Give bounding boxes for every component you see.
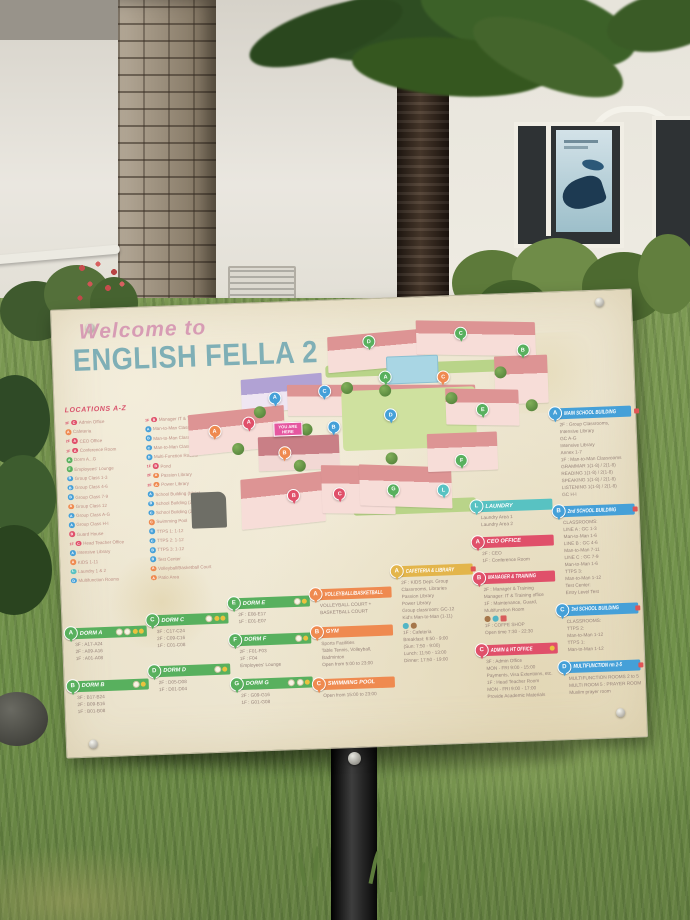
photo-scene: Welcome to ENGLISH FELLA 2 LOCATIONS A-Z… xyxy=(0,0,690,920)
light-amenity-icon xyxy=(205,615,212,622)
screw xyxy=(595,298,604,307)
info-box-laundry: LLAUNDRYLaundry Area 1Laundry Area 2 xyxy=(472,499,553,530)
box-pin-b: B xyxy=(551,505,566,520)
info-box-ceo-office: ACEO OFFICE2F : CEO1F : Conference Room xyxy=(474,534,555,565)
header-icons xyxy=(292,598,307,606)
box-title: 3rd SCHOOL BUILDING xyxy=(571,606,619,614)
marker-tail xyxy=(323,396,327,402)
pin-tail xyxy=(553,418,557,424)
map-marker-c: C xyxy=(436,371,449,384)
gold-amenity-icon xyxy=(222,666,227,671)
location-letter-badge: A xyxy=(151,575,157,581)
box-pin-c: C xyxy=(555,603,570,618)
map-marker-g: G xyxy=(387,483,400,496)
light-amenity-icon xyxy=(124,628,131,635)
location-label: Pond xyxy=(160,463,171,468)
wifi-icon xyxy=(492,616,498,622)
map-marker-b: B xyxy=(327,420,340,433)
location-letter-badge: A xyxy=(153,473,159,479)
info-box-dorm-d: DDORM D2F : D05-D081F : D01-D04 xyxy=(150,663,231,694)
pin-tail xyxy=(71,691,75,697)
marker-tail xyxy=(367,346,371,352)
floor-tag: 2F xyxy=(147,483,151,487)
location-label: Laundry 1 & 2 xyxy=(78,568,106,574)
location-letter-badge: B xyxy=(151,417,157,423)
box-title: VOLLEYBALL/BASKETBALL xyxy=(324,589,383,597)
light-amenity-icon xyxy=(132,681,139,688)
info-box-volleyball-basketball: AVOLLEYBALL/BASKETBALLVOLLEYBALL COURT +… xyxy=(311,586,392,617)
pin-tail xyxy=(232,608,236,614)
box-line: Open time 7:30 - 22:30 xyxy=(485,628,556,638)
map-marker-l: L xyxy=(437,483,450,496)
location-letter-badge: B xyxy=(153,463,159,469)
header-icons xyxy=(204,615,226,623)
box-pin-l: L xyxy=(469,499,484,514)
marker-tail xyxy=(292,500,296,506)
box-title: MULTIFUNCTION rm 2-5 xyxy=(573,662,622,670)
location-letter-badge: B xyxy=(146,436,152,442)
box-pin-b: B xyxy=(66,679,81,694)
window-mullion xyxy=(546,126,551,236)
map-marker-c: C xyxy=(333,487,346,500)
location-label: Group Class H-I xyxy=(76,521,108,527)
marker-tail xyxy=(459,338,463,344)
light-amenity-icon xyxy=(214,666,221,673)
location-letter-badge: A xyxy=(145,426,151,432)
info-box-dorm-e: EDORM E2F : E08-E171F : E01-E07 xyxy=(230,595,311,626)
info-box-dorm-g: GDORM G2F : G09-G161F : G01-G08 xyxy=(233,676,314,707)
location-letter-badge: A xyxy=(148,491,154,497)
wall-upper-left xyxy=(0,0,122,40)
box-line: BASKETBALL COURT xyxy=(320,607,391,617)
pin-tail xyxy=(235,689,239,695)
info-box-2nd-school-building: B2nd SCHOOL BUILDINGCLASSROOMS:LINE A : … xyxy=(555,504,638,597)
wifi-icon xyxy=(403,623,409,629)
box-title: MAIN SCHOOL BUILDING xyxy=(564,409,616,417)
box-title: GYM xyxy=(326,629,339,635)
info-box-body: MULTIFUNCTION ROOMS 2 to 5MULTI ROOM 5 :… xyxy=(561,670,642,697)
info-box-body: 3F : A17-A242F : A09-A161F : A01-A08 xyxy=(67,636,148,663)
light-amenity-icon xyxy=(115,628,122,635)
pole-bolt xyxy=(348,752,361,765)
screw xyxy=(89,739,98,748)
info-box-3rd-school-building: C3rd SCHOOL BUILDINGCLASSROOMS:TTPS 2:Ma… xyxy=(558,602,640,654)
header-icons xyxy=(634,605,641,610)
map-marker-b: B xyxy=(516,344,529,357)
info-box-main-school-building: AMAIN SCHOOL BUILDING2F : Group Classroo… xyxy=(551,406,634,499)
header-icons xyxy=(632,408,639,413)
box-line: 1F : B01-B08 xyxy=(78,706,149,716)
map-marker-d: D xyxy=(384,409,397,422)
info-box-swimming-pool: CSWIMMING POOLOpen from 15:00 to 23:00 xyxy=(315,676,396,700)
box-line: 1F : D01-D04 xyxy=(159,684,230,694)
boxes-column-school-buildings: AMAIN SCHOOL BUILDING2F : Group Classroo… xyxy=(551,406,642,697)
gold-amenity-icon xyxy=(303,635,308,640)
box-pin-e: E xyxy=(227,596,242,611)
you-are-here-badge: YOU ARE HERE xyxy=(273,422,302,437)
marker-tail xyxy=(521,355,525,361)
box-title: CAFETERIA & LIBRARY xyxy=(406,567,455,575)
box-line: Provide Academic Materials xyxy=(487,691,558,701)
gold-amenity-icon xyxy=(550,646,555,651)
boxes-column-dorm-ab: ADORM A3F : A17-A242F : A09-A161F : A01-… xyxy=(67,625,150,716)
marker-tail xyxy=(283,457,287,463)
location-label: Head Teacher Office xyxy=(83,539,124,545)
boxes-column-offices: LLAUNDRYLaundry Area 1Laundry Area 2ACEO… xyxy=(472,499,559,702)
gold-amenity-icon xyxy=(302,599,307,604)
info-box-cafeteria-library: ACAFETERIA & LIBRARY2F : KIDS Dept. Grou… xyxy=(393,563,477,665)
location-label: Group Class 7-9 xyxy=(75,493,108,499)
marker-tail xyxy=(213,436,217,442)
pin-tail xyxy=(315,637,319,643)
boxes-column-dorm-efg: EDORM E2F : E08-E171F : E01-E07FDORM F2F… xyxy=(230,595,314,707)
location-label: Admin Office xyxy=(79,419,105,425)
info-box-gym: BGYMSports FacilitiesTable Tennis, Volle… xyxy=(313,624,394,669)
gold-amenity-icon xyxy=(141,681,146,686)
location-label: Employees' Lounge xyxy=(74,465,114,471)
header-icons xyxy=(632,507,639,512)
info-box-body: 3F : Admin OfficeMON - FRI 9:00 - 15:00P… xyxy=(478,653,560,701)
info-box-dorm-b: BDORM B3F : B17-B242F : B09-B161F : B01-… xyxy=(69,678,150,716)
info-box-body: 2F : G09-G161F : G01-G08 xyxy=(233,687,314,707)
info-box-body: 2F : Manager & TrainingManager: IT & Tra… xyxy=(475,581,557,637)
location-letter-badge: C xyxy=(149,519,155,525)
info-box-dorm-c: CDORM C3F : C17-C242F : C09-C161F : C01-… xyxy=(148,612,229,650)
gold-amenity-icon xyxy=(139,629,144,634)
info-box-body: 2F : CEO1F : Conference Room xyxy=(474,545,555,565)
info-box-body: 3F : B17-B242F : B09-B161F : B01-B08 xyxy=(69,689,150,716)
box-pin-d: D xyxy=(557,660,572,675)
location-letter-badge: B xyxy=(150,556,156,562)
marker-tail xyxy=(332,431,336,437)
foreground-plants xyxy=(0,345,80,635)
box-line: Man-to-Man 1-12 xyxy=(568,644,639,654)
location-letter-badge: C xyxy=(149,529,155,535)
box-pin-a: A xyxy=(548,406,563,421)
boxes-column-cafeteria: ACAFETERIA & LIBRARY2F : KIDS Dept. Grou… xyxy=(393,563,477,665)
map-marker-e: E xyxy=(476,403,489,416)
light-amenity-icon xyxy=(288,679,295,686)
info-box-body: CLASSROOMS:TTPS 2:Man-to-Man 1-12TTPS 1:… xyxy=(559,613,640,654)
map-marker-c: C xyxy=(318,385,331,398)
box-title: DORM D xyxy=(163,667,186,674)
box-title: DORM E xyxy=(243,600,266,607)
bush xyxy=(0,375,50,465)
light-amenity-icon xyxy=(293,598,300,605)
info-box-body: 2F : D05-D081F : D01-D04 xyxy=(151,674,232,694)
map-marker-a: A xyxy=(268,391,281,404)
marker-tail xyxy=(384,381,388,387)
boxes-column-dorm-cd: CDORM C3F : C17-C242F : C09-C161F : C01-… xyxy=(148,612,231,694)
box-pin-b: B xyxy=(310,625,325,640)
pin-tail xyxy=(557,517,561,523)
box-pin-a: A xyxy=(308,587,323,602)
poster-text-line xyxy=(564,146,588,149)
info-box-body: Sports FacilitiesTable Tennis, Volleybal… xyxy=(313,635,394,669)
box-line: 1F : E01-E07 xyxy=(238,616,309,626)
floor-tag: 2F xyxy=(147,474,151,478)
coffee-icon xyxy=(411,623,417,629)
box-line: Open from 5:00 to 23:00 xyxy=(322,659,393,669)
info-box-manager-training: BMANAGER & TRAINING2F : Manager & Traini… xyxy=(475,570,557,637)
box-pin-d: D xyxy=(147,664,162,679)
bush xyxy=(0,525,52,615)
bush xyxy=(638,234,690,314)
marker-tail xyxy=(442,495,446,501)
red-amenity-icon xyxy=(639,662,644,667)
box-line: 1F : Conference Room xyxy=(482,555,553,565)
gold-amenity-icon xyxy=(305,679,310,684)
marker-tail xyxy=(481,414,485,420)
pin-tail xyxy=(317,689,321,695)
location-letter-badge: C xyxy=(148,510,154,516)
location-label: Guard House xyxy=(77,531,104,537)
box-pin-c: C xyxy=(312,677,327,692)
box-pin-a: A xyxy=(390,564,405,579)
box-title: ADMIN & HT OFFICE xyxy=(491,646,533,654)
light-amenity-icon xyxy=(296,679,303,686)
box-title: SWIMMING POOL xyxy=(328,679,375,687)
location-label: Conference Room xyxy=(80,447,117,453)
location-letter-badge: C xyxy=(146,445,152,451)
location-letter-badge: B xyxy=(150,547,156,553)
box-line: Employees' Lounge xyxy=(240,660,311,670)
location-label: KIDS 1-11 xyxy=(78,559,99,565)
box-line: Entry Level Test xyxy=(566,588,637,598)
location-label: CEO Office xyxy=(79,438,102,444)
location-label: Group Class A-G xyxy=(76,512,110,518)
pin-tail xyxy=(480,655,484,661)
marker-tail xyxy=(460,465,464,471)
marker-tail xyxy=(441,382,445,388)
info-box-admin-ht-office: CADMIN & HT OFFICE3F : Admin OfficeMON -… xyxy=(478,642,560,701)
location-letter-badge: C xyxy=(149,538,155,544)
marker-tail xyxy=(247,427,251,433)
box-pin-a: A xyxy=(471,535,486,550)
box-pin-f: F xyxy=(228,633,243,648)
box-title: CEO OFFICE xyxy=(487,538,521,545)
location-label: Group Class 12 xyxy=(76,503,107,509)
info-box-body: 2F : Group Classrooms,Intensive LibraryG… xyxy=(551,417,634,499)
location-label: Multifunction Rooms xyxy=(78,577,119,583)
gold-amenity-icon xyxy=(214,616,219,621)
box-title: DORM A xyxy=(80,630,103,637)
card-icon xyxy=(500,615,506,621)
floor-tag: 1F xyxy=(147,464,151,468)
header-icons xyxy=(131,680,146,688)
location-letter-badge: A xyxy=(150,566,156,572)
map-marker-b: B xyxy=(287,489,300,502)
map-marker-c: C xyxy=(454,327,467,340)
map-marker-d: D xyxy=(362,335,375,348)
location-label: Patio Area xyxy=(158,574,179,580)
marker-tail xyxy=(392,494,396,500)
box-title: 2nd SCHOOL BUILDING xyxy=(568,507,617,515)
box-line: Open from 15:00 to 23:00 xyxy=(323,690,394,700)
pin-tail xyxy=(151,625,155,631)
box-line: 1F : C01-C08 xyxy=(157,640,228,650)
marker-tail xyxy=(273,402,277,408)
poster-text-line xyxy=(564,140,598,143)
red-amenity-icon xyxy=(633,507,638,512)
map-marker-a: A xyxy=(208,425,221,438)
marker-tail xyxy=(389,420,393,426)
box-title: MANAGER & TRAINING xyxy=(488,573,536,581)
boxes-column-sports: AVOLLEYBALL/BASKETBALLVOLLEYBALL COURT +… xyxy=(311,586,395,700)
pin-tail xyxy=(152,676,156,682)
info-box-body: VOLLEYBALL COURT +BASKETBALL COURT xyxy=(312,597,393,617)
box-pin-c: C xyxy=(474,643,489,658)
box-title: DORM G xyxy=(246,680,269,687)
header-icons xyxy=(637,662,644,667)
pin-tail xyxy=(69,638,73,644)
map-marker-a: A xyxy=(379,370,392,383)
red-flowers xyxy=(72,258,132,308)
map-marker-b: B xyxy=(278,446,291,459)
box-title: DORM F xyxy=(244,637,266,644)
header-icons xyxy=(548,646,555,651)
header-icons xyxy=(114,628,144,636)
box-title: DORM C xyxy=(161,617,184,624)
info-box-body: 3F : C17-C242F : C09-C161F : C01-C08 xyxy=(149,623,230,650)
info-box-body: 2F : F01-F031F : F04Employees' Lounge xyxy=(231,643,312,670)
pin-tail xyxy=(395,576,399,582)
box-line: Dinner: 17:50 - 19:00 xyxy=(404,656,475,666)
box-pin-c: C xyxy=(145,613,160,628)
location-letter-badge: D xyxy=(146,454,152,460)
red-amenity-icon xyxy=(635,605,640,610)
pin-tail xyxy=(477,583,481,589)
box-title: DORM B xyxy=(82,682,105,689)
box-pin-b: B xyxy=(472,571,487,586)
pin-tail xyxy=(233,645,237,651)
marker-tail xyxy=(338,498,342,504)
pin-tail xyxy=(476,547,480,553)
location-label: Intensive Library xyxy=(77,549,110,555)
info-box-body: Laundry Area 1Laundry Area 2 xyxy=(473,510,554,530)
box-line: 1F : A01-A08 xyxy=(76,653,147,663)
gold-amenity-icon xyxy=(220,616,225,621)
box-title: LAUNDRY xyxy=(485,502,512,509)
pin-tail xyxy=(475,511,479,517)
red-amenity-icon xyxy=(634,408,639,413)
light-amenity-icon xyxy=(295,635,302,642)
map-marker-a: A xyxy=(242,416,255,429)
coffee-icon xyxy=(484,616,490,622)
pin-tail xyxy=(563,672,567,678)
header-icons xyxy=(212,665,227,673)
location-letter-badge: A xyxy=(154,482,160,488)
screw xyxy=(616,708,625,717)
pin-tail xyxy=(314,599,318,605)
info-box-dorm-f: FDORM F2F : F01-F031F : F04Employees' Lo… xyxy=(231,632,312,670)
floor-tag: 1F xyxy=(145,418,149,422)
info-box-body: 2F : KIDS Dept. GroupClassrooms, Librari… xyxy=(393,574,476,665)
info-box-body: CLASSROOMS:LINE A : GC 1-3Man-to-Man 1-6… xyxy=(555,515,638,597)
info-box-multifunction-rm-2-5: DMULTIFUNCTION rm 2-5MULTIFUNCTION ROOMS… xyxy=(560,659,641,697)
header-icons xyxy=(286,678,310,686)
pin-tail xyxy=(561,615,565,621)
sign-panel: Welcome to ENGLISH FELLA 2 LOCATIONS A-Z… xyxy=(50,288,648,758)
location-letter-badge: B xyxy=(148,501,154,507)
map-marker-f: F xyxy=(455,454,468,467)
header-icons xyxy=(293,634,308,642)
gold-amenity-icon xyxy=(132,629,137,634)
box-line: Laundry Area 2 xyxy=(481,520,552,530)
box-pin-g: G xyxy=(230,677,245,692)
info-box-body: 2F : E08-E171F : E01-E07 xyxy=(230,606,311,626)
